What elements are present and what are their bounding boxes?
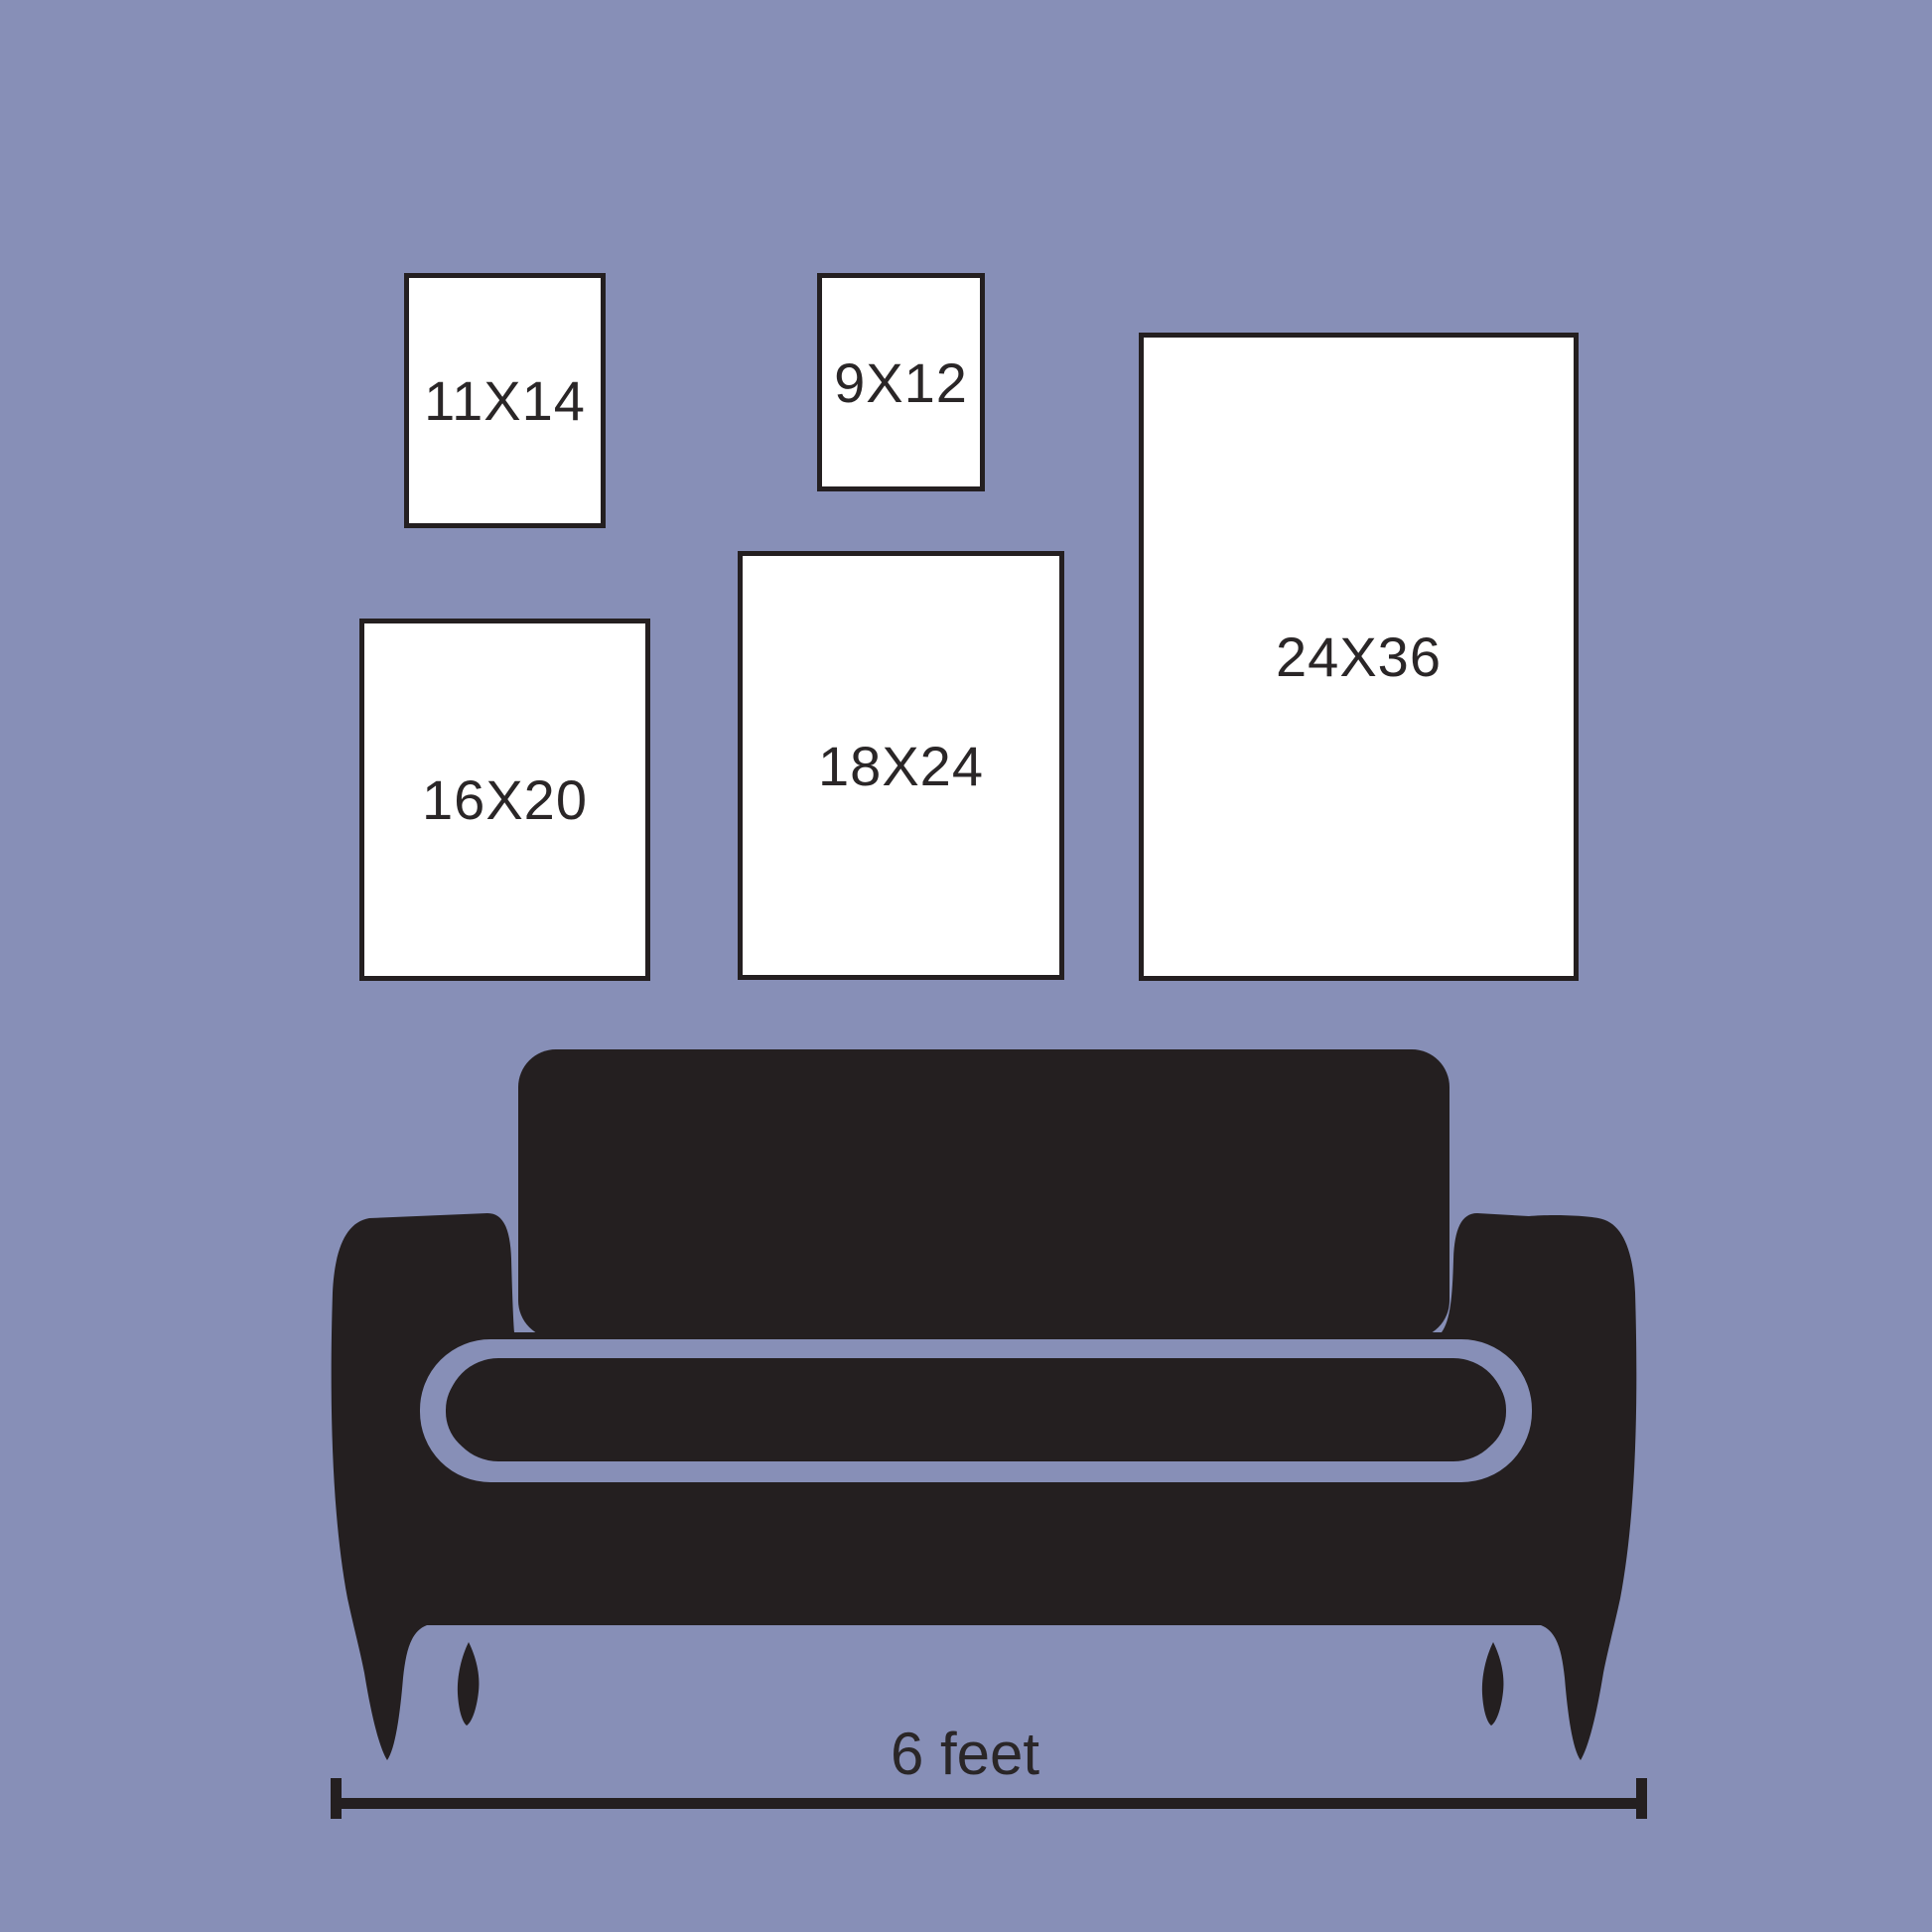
measurement-cap-left xyxy=(331,1778,342,1819)
measurement-label: 6 feet xyxy=(816,1724,1114,1785)
sofa-inner-leg-right xyxy=(1482,1642,1504,1725)
sofa-inner-leg-left xyxy=(458,1642,480,1725)
measurement-line-bar xyxy=(342,1798,1636,1809)
sofa-seat-cushion xyxy=(447,1358,1505,1461)
sofa-backrest xyxy=(518,1049,1449,1338)
frame-size-guide: 11X149X1216X2018X2424X36 6 feet xyxy=(0,0,1932,1932)
measurement-cap-right xyxy=(1636,1778,1647,1819)
sofa-illustration xyxy=(0,0,1932,1932)
